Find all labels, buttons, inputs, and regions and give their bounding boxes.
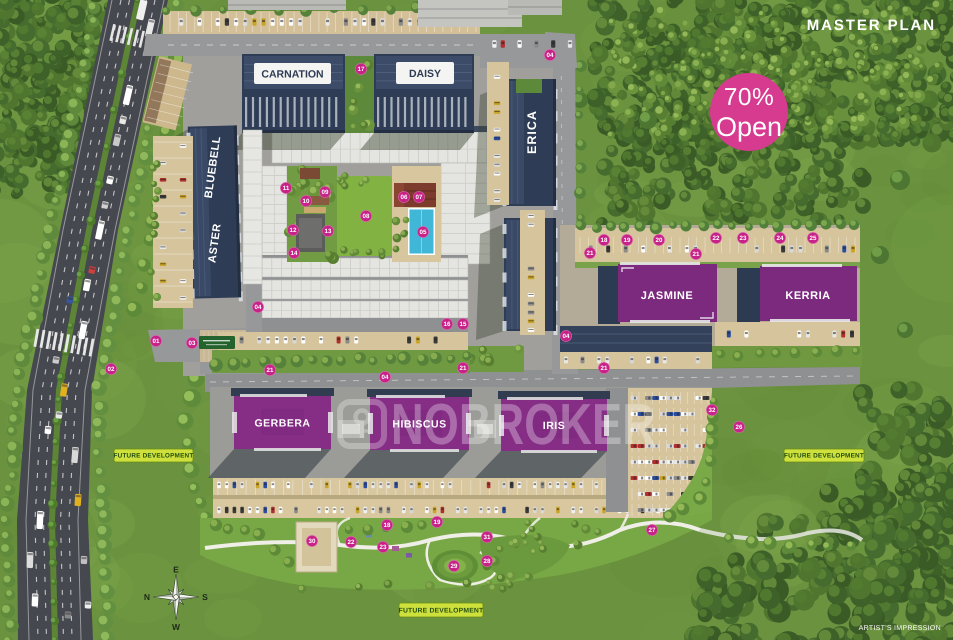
svg-text:23: 23 <box>740 235 747 242</box>
svg-text:70%: 70% <box>724 84 775 111</box>
svg-text:10: 10 <box>303 198 310 205</box>
svg-text:ERICA: ERICA <box>525 110 539 154</box>
svg-text:06: 06 <box>401 194 408 201</box>
svg-text:21: 21 <box>601 365 608 372</box>
svg-text:02: 02 <box>108 366 115 373</box>
svg-text:15: 15 <box>460 321 467 328</box>
svg-text:26: 26 <box>736 424 743 431</box>
svg-text:S: S <box>202 592 208 602</box>
svg-text:21: 21 <box>693 251 700 258</box>
svg-text:21: 21 <box>267 367 274 374</box>
svg-text:03: 03 <box>189 340 196 347</box>
svg-text:16: 16 <box>444 321 451 328</box>
svg-text:GERBERA: GERBERA <box>254 417 310 429</box>
svg-text:25: 25 <box>810 235 817 242</box>
svg-text:20: 20 <box>656 237 663 244</box>
svg-text:04: 04 <box>255 304 262 311</box>
svg-text:21: 21 <box>587 250 594 257</box>
svg-text:MASTER PLAN: MASTER PLAN <box>807 17 936 34</box>
svg-text:17: 17 <box>358 66 365 73</box>
svg-text:31: 31 <box>484 534 491 541</box>
svg-text:ARTIST'S IMPRESSION: ARTIST'S IMPRESSION <box>859 625 941 632</box>
svg-text:19: 19 <box>624 237 631 244</box>
svg-text:23: 23 <box>380 544 387 551</box>
svg-text:14: 14 <box>291 250 298 257</box>
svg-text:08: 08 <box>363 213 370 220</box>
svg-text:FUTURE DEVELOPMENT: FUTURE DEVELOPMENT <box>114 453 194 460</box>
svg-text:27: 27 <box>649 527 656 534</box>
svg-text:12: 12 <box>290 227 297 234</box>
svg-text:28: 28 <box>484 558 491 565</box>
svg-text:KERRIA: KERRIA <box>785 290 830 302</box>
svg-text:04: 04 <box>547 52 554 59</box>
svg-text:13: 13 <box>325 228 332 235</box>
svg-text:22: 22 <box>348 539 355 546</box>
svg-text:FUTURE DEVELOPMENT: FUTURE DEVELOPMENT <box>784 453 864 460</box>
svg-text:NOBROKER: NOBROKER <box>391 392 655 457</box>
svg-text:05: 05 <box>420 229 427 236</box>
svg-text:11: 11 <box>283 185 290 192</box>
svg-text:E: E <box>173 565 179 575</box>
svg-text:07: 07 <box>416 194 423 201</box>
svg-text:CARNATION: CARNATION <box>261 69 323 81</box>
svg-text:01: 01 <box>153 338 160 345</box>
svg-text:04: 04 <box>382 374 389 381</box>
svg-text:19: 19 <box>434 519 441 526</box>
svg-text:18: 18 <box>601 237 608 244</box>
svg-text:JASMINE: JASMINE <box>641 290 693 302</box>
svg-text:W: W <box>172 622 181 632</box>
svg-text:Open: Open <box>716 112 782 142</box>
svg-text:09: 09 <box>322 189 329 196</box>
svg-text:N: N <box>144 592 150 602</box>
svg-text:FUTURE DEVELOPMENT: FUTURE DEVELOPMENT <box>399 607 484 614</box>
svg-text:21: 21 <box>460 365 467 372</box>
svg-text:30: 30 <box>309 538 316 545</box>
svg-text:18: 18 <box>384 522 391 529</box>
svg-text:32: 32 <box>709 407 716 414</box>
svg-text:29: 29 <box>451 563 458 570</box>
svg-text:DAISY: DAISY <box>409 68 441 80</box>
svg-text:24: 24 <box>777 235 784 242</box>
svg-text:04: 04 <box>563 333 570 340</box>
svg-text:22: 22 <box>713 235 720 242</box>
